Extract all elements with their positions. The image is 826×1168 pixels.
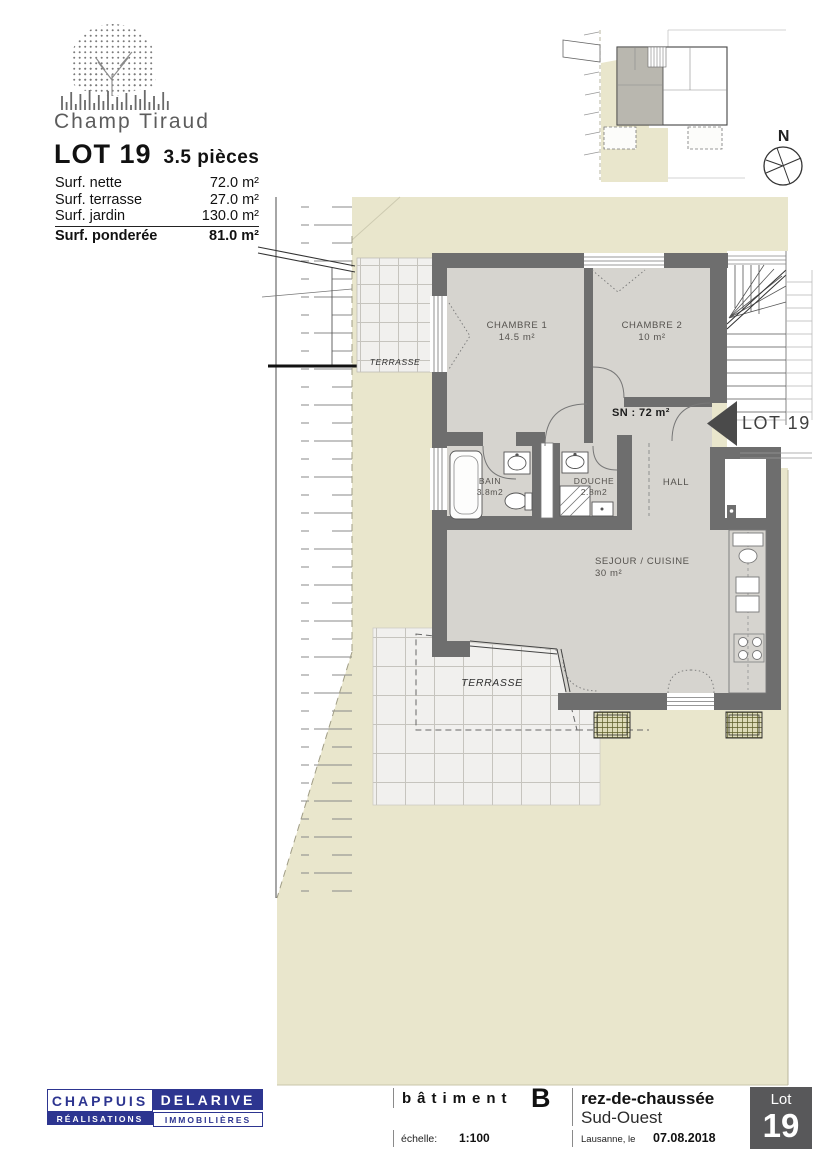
divider	[393, 1088, 394, 1108]
bain-sink-icon	[504, 452, 530, 474]
room-name: HALL	[663, 477, 689, 489]
divider	[572, 1088, 573, 1126]
floor-label: rez-de-chaussée	[581, 1089, 714, 1109]
page-title: LOT 193.5 pièces	[54, 139, 259, 170]
project-name: Champ Tiraud	[54, 110, 210, 134]
table-row: Surf. terrasse 27.0 m²	[55, 192, 259, 209]
douche-sink-icon	[562, 452, 588, 473]
champ-tiraud-logo	[62, 24, 168, 110]
duct-shaft	[541, 443, 553, 518]
douche-cabinet-icon	[592, 502, 613, 516]
room-name: CHAMBRE 1	[487, 320, 548, 332]
room-name: BAIN	[477, 476, 504, 487]
city-label: Lausanne, le	[581, 1134, 635, 1145]
terrace-upper	[357, 258, 433, 372]
table-row: Surf. jardin 130.0 m²	[55, 208, 259, 227]
key-plan	[563, 30, 786, 182]
brand-immobilieres: IMMOBILIÈRES	[153, 1112, 263, 1127]
surface-label: Surf. jardin	[55, 208, 125, 225]
brand-chappuis: CHAPPUIS	[47, 1089, 153, 1112]
surface-table: Surf. nette 72.0 m² Surf. terrasse 27.0 …	[55, 175, 259, 244]
room-area: 30 m²	[595, 568, 690, 580]
north-label: N	[778, 127, 790, 148]
room-label-douche: DOUCHE 2.8m2	[574, 476, 614, 498]
lot-pieces: 3.5 pièces	[164, 147, 260, 168]
brand-delarive: DELARIVE	[153, 1089, 263, 1110]
room-area: 14.5 m²	[487, 332, 548, 344]
lot-number-box: Lot 19	[750, 1087, 812, 1149]
surface-value: 27.0 m²	[210, 192, 259, 209]
lot-title: LOT 19	[54, 139, 152, 169]
table-row: Surf. ponderée 81.0 m²	[55, 227, 259, 245]
room-label-sejour: SEJOUR / CUISINE 30 m²	[595, 556, 690, 581]
table-row: Surf. nette 72.0 m²	[55, 175, 259, 192]
lot-box-label: Lot	[750, 1087, 812, 1109]
room-label-chambre2: CHAMBRE 2 10 m²	[622, 320, 683, 345]
scale-value: 1:100	[459, 1131, 490, 1145]
brand-realisations: RÉALISATIONS	[47, 1112, 153, 1125]
room-label-chambre1: CHAMBRE 1 14.5 m²	[487, 320, 548, 345]
room-label-bain: BAIN 3.8m2	[477, 476, 504, 498]
surface-value: 81.0 m²	[209, 228, 259, 245]
reduit-fixture	[727, 505, 736, 518]
room-name: SEJOUR / CUISINE	[595, 556, 690, 568]
net-surface-label: SN : 72 m²	[612, 406, 670, 420]
stairwell-area	[727, 251, 812, 468]
terrace-lower-label: TERRASSE	[461, 677, 522, 691]
room-label-hall: HALL	[663, 477, 689, 489]
surface-value: 72.0 m²	[210, 175, 259, 192]
surface-label: Surf. ponderée	[55, 228, 157, 245]
surface-label: Surf. nette	[55, 175, 122, 192]
lot-box-number: 19	[750, 1109, 812, 1143]
floor-plan-page: Champ Tiraud LOT 193.5 pièces Surf. nett…	[0, 0, 826, 1168]
room-area: 2.8m2	[574, 487, 614, 498]
scale-label: échelle:	[401, 1133, 437, 1145]
chappuis-delarive-logo: CHAPPUIS DELARIVE RÉALISATIONS IMMOBILIÈ…	[47, 1089, 263, 1127]
building-label: bâtiment	[402, 1090, 513, 1107]
slope-hatching	[276, 197, 352, 898]
bain-wc-icon	[505, 493, 532, 510]
terrace-upper-label: TERRASSE	[370, 357, 421, 368]
room-name: DOUCHE	[574, 476, 614, 487]
room-name: CHAMBRE 2	[622, 320, 683, 332]
orientation-label: Sud-Ouest	[581, 1108, 662, 1128]
surface-value: 130.0 m²	[202, 208, 259, 225]
north-compass-icon	[764, 147, 802, 185]
room-area: 10 m²	[622, 332, 683, 344]
entrance-lot-label: LOT 19	[742, 412, 811, 435]
date-value: 07.08.2018	[653, 1131, 716, 1145]
building-value: B	[531, 1083, 551, 1114]
surface-label: Surf. terrasse	[55, 192, 142, 209]
divider	[572, 1130, 573, 1147]
divider	[393, 1130, 394, 1147]
room-area: 3.8m2	[477, 487, 504, 498]
